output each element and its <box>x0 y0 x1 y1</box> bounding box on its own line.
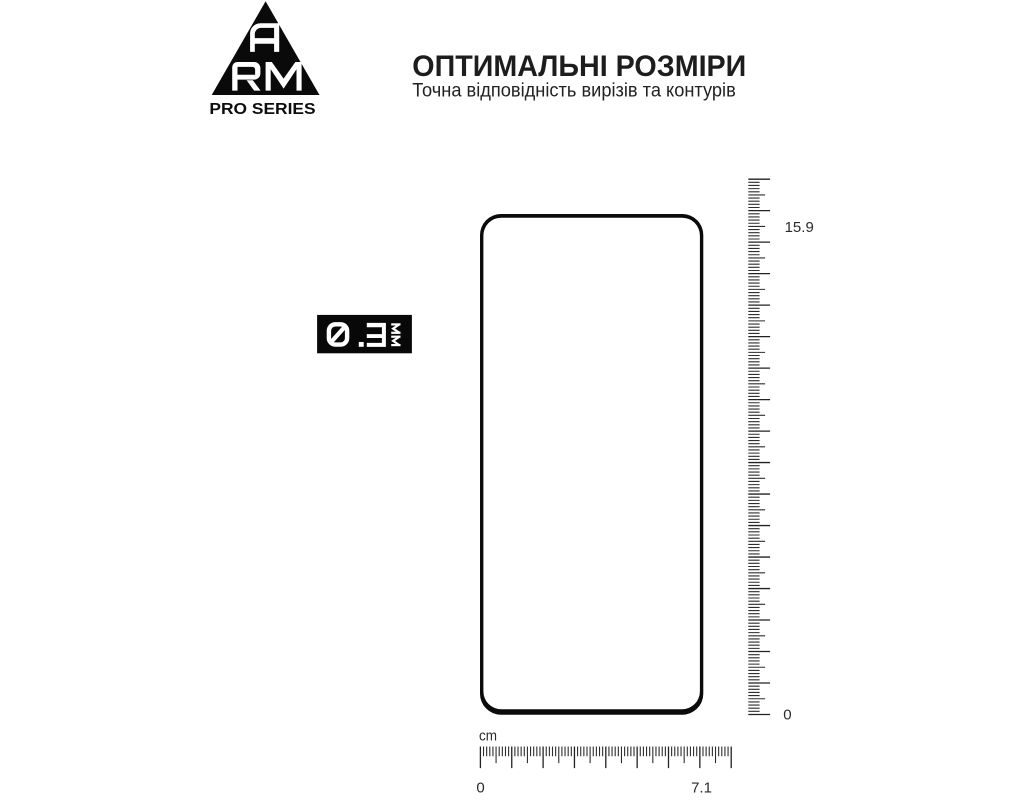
svg-text:7.1: 7.1 <box>691 780 712 797</box>
svg-text:PRO SERIES: PRO SERIES <box>209 101 316 118</box>
svg-text:ОПТИМАЛЬНІ РОЗМІРИ: ОПТИМАЛЬНІ РОЗМІРИ <box>412 50 746 83</box>
svg-text:Точна відповідність вирізів та: Точна відповідність вирізів та контурів <box>412 80 736 101</box>
svg-text:15.9: 15.9 <box>785 219 814 236</box>
svg-text:0: 0 <box>783 706 791 723</box>
svg-text:cm: cm <box>479 728 497 745</box>
svg-text:0: 0 <box>476 780 484 797</box>
